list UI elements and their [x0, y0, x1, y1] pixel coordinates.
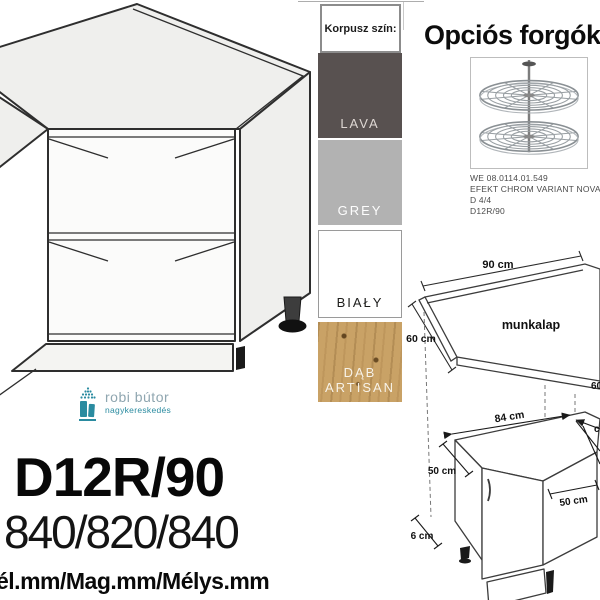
korpusz-title-box: Korpusz szín: — [320, 4, 401, 53]
product-dimensions-legend: él.mm/Mag.mm/Mélys.mm — [0, 568, 269, 595]
cabinet-left-width-label: 50 cm — [428, 466, 456, 477]
swatch-bialy[interactable]: BIAŁY — [318, 230, 402, 318]
product-code: D12R/90 — [14, 445, 224, 509]
logo-subtitle: nagykereskedés — [105, 405, 171, 415]
swatch-lava-label: LAVA — [318, 116, 402, 138]
swatch-bialy-label: BIAŁY — [319, 295, 401, 317]
logo-tree-icon — [76, 386, 100, 424]
swatch-grey-label: GREY — [318, 203, 402, 225]
carousel-image-frame — [470, 57, 588, 169]
worktop-left-depth-label: 60 cm — [406, 333, 436, 345]
korpusz-title: Korpusz szín: — [324, 23, 396, 35]
cabinet-plinth-height-label: 6 cm — [411, 531, 434, 542]
swatch-dab-artisan-label: DĄB ARTISAN — [318, 365, 402, 402]
dimension-diagrams: 90 cm 60 cm 60 cm munkalap 84 cm 50 cm 5… — [398, 248, 600, 600]
worktop-right-depth-label: 60 cm — [591, 381, 600, 392]
corner-cabinet-drawing — [0, 0, 320, 402]
rotating-carousel-image — [471, 58, 587, 168]
caption-line-3: D12R/90 — [470, 206, 600, 217]
worktop-label: munkalap — [502, 318, 561, 332]
caption-line-1: WE 08.0114.01.549 — [470, 173, 600, 184]
swatch-grey[interactable]: GREY — [318, 140, 402, 225]
plinth-foot — [236, 346, 245, 370]
logo: robi bútor nagykereskedés — [76, 386, 196, 426]
section-divider-line — [403, 2, 404, 30]
caption-line-2: EFEKT CHROM VARIANT NOVA D 4/4 — [470, 184, 600, 206]
carousel-caption: WE 08.0114.01.549 EFEKT CHROM VARIANT NO… — [470, 173, 600, 217]
product-sheet: { "korpusz": { "title": "Korpusz szín:",… — [0, 0, 600, 600]
worktop-width-label: 90 cm — [482, 259, 513, 271]
cabinet-right-cut-label: cm — [594, 424, 600, 435]
logo-name: robi bútor — [105, 390, 171, 405]
swatch-dab-artisan[interactable]: DĄB ARTISAN — [318, 322, 402, 402]
product-dimensions: 840/820/840 — [4, 505, 238, 559]
swatch-lava[interactable]: LAVA — [318, 53, 402, 138]
optional-section-title: Opciós forgóko — [424, 20, 600, 51]
